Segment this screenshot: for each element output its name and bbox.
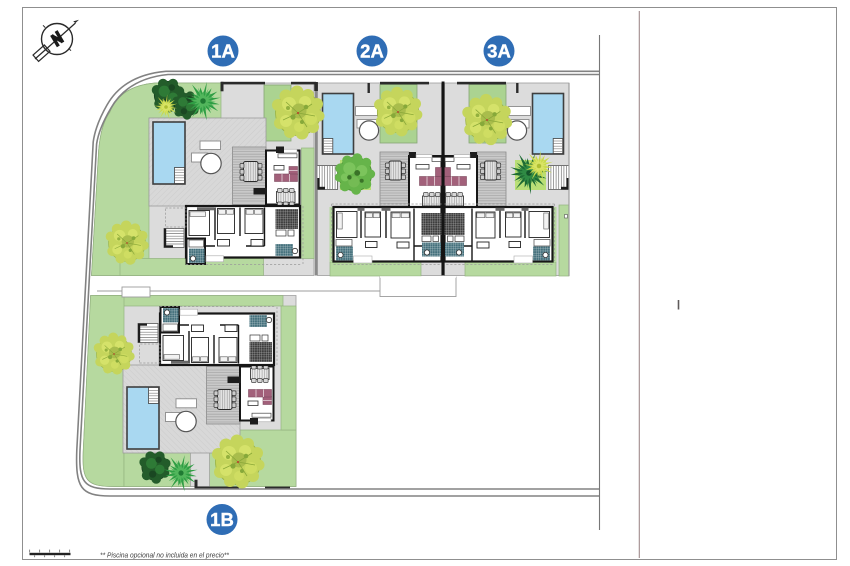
svg-text:1A: 1A (211, 41, 235, 62)
svg-text:2A: 2A (360, 41, 384, 62)
svg-text:3A: 3A (487, 41, 511, 62)
svg-text:1B: 1B (210, 509, 234, 530)
svg-text:** Piscina opcional no incluid: ** Piscina opcional no incluida en el pr… (100, 550, 230, 559)
